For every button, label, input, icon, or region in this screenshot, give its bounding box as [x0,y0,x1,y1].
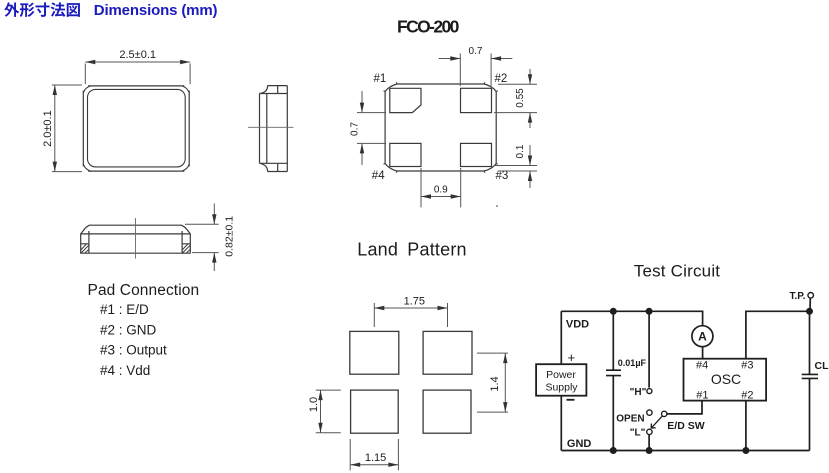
svg-text:1.75: 1.75 [404,296,425,308]
svg-text:GND: GND [567,438,592,450]
svg-text:0.1: 0.1 [515,144,526,158]
svg-text:2.5±0.1: 2.5±0.1 [119,49,156,61]
svg-text:Test Circuit: Test Circuit [634,262,721,281]
svg-text:#3 : Output: #3 : Output [100,343,167,358]
svg-text:FCO-200: FCO-200 [397,17,460,37]
svg-text:#3: #3 [741,359,753,371]
svg-text:OPEN: OPEN [616,414,644,425]
svg-text:0.01µF: 0.01µF [618,358,647,368]
svg-text:#2 : GND: #2 : GND [100,322,157,337]
svg-text:#4 : Vdd: #4 : Vdd [100,363,150,378]
svg-text:#2: #2 [495,73,508,85]
svg-text:+: + [568,350,576,365]
svg-text:Supply: Supply [545,382,578,394]
svg-text:1.4: 1.4 [489,376,501,391]
svg-text:#1 : E/D: #1 : E/D [100,302,149,317]
svg-text:VDD: VDD [566,319,589,331]
svg-text:0.7: 0.7 [349,122,360,136]
svg-text:1.0: 1.0 [308,397,320,412]
svg-text:E/D SW: E/D SW [667,420,704,432]
svg-text:"L": "L" [630,427,646,438]
svg-text:CL: CL [815,360,829,372]
svg-text:2.0±0.1: 2.0±0.1 [42,110,54,147]
svg-text:0.9: 0.9 [434,184,448,195]
svg-text:0.7: 0.7 [469,46,483,57]
svg-text:Dimensions (mm): Dimensions (mm) [94,2,218,19]
svg-text:#2: #2 [741,390,753,402]
svg-text:Land Pattern: Land Pattern [357,240,466,260]
svg-text:0.82±0.1: 0.82±0.1 [224,216,236,257]
svg-text:0.55: 0.55 [515,88,526,108]
svg-text:#1: #1 [374,73,387,85]
svg-text:"H": "H" [630,387,647,398]
svg-text:#4: #4 [696,359,708,371]
svg-text:OSC: OSC [711,371,741,387]
svg-text:Power: Power [546,369,576,381]
svg-text:#3: #3 [496,170,509,182]
svg-text:#4: #4 [372,170,385,182]
svg-text:1.15: 1.15 [365,452,386,464]
svg-text:A: A [698,330,707,344]
svg-text:Pad Connection: Pad Connection [88,282,200,299]
svg-text:#1: #1 [696,390,708,402]
svg-text:T.P.: T.P. [790,291,806,302]
